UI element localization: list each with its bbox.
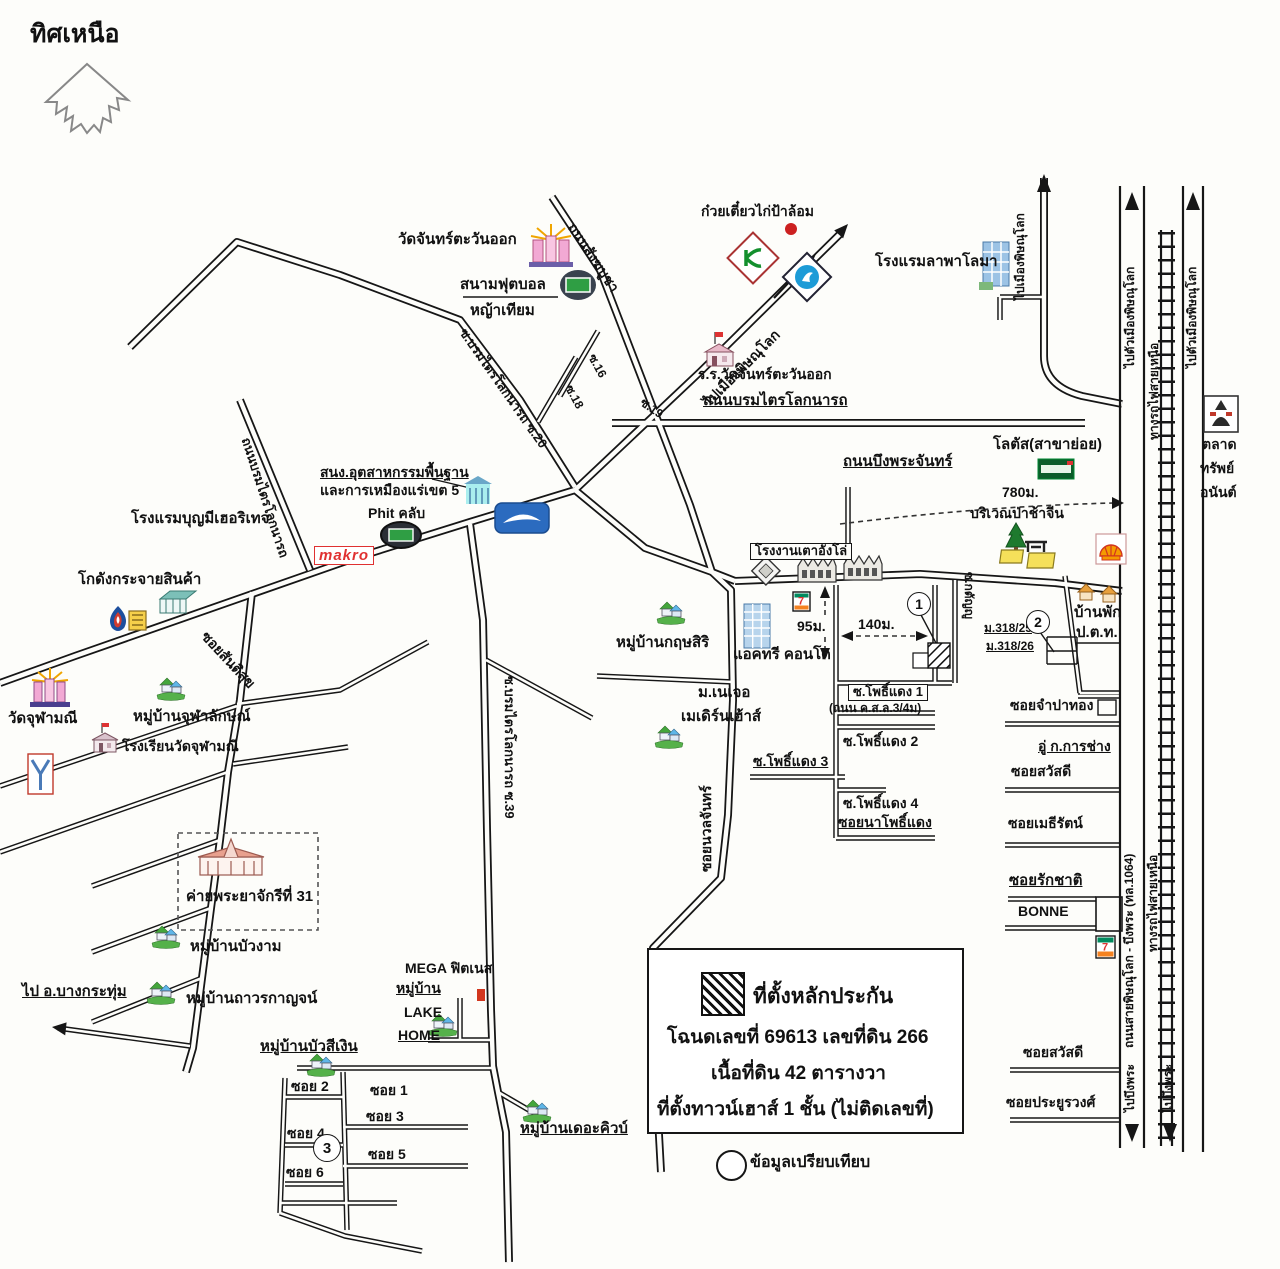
blue-sign-icon [495, 503, 549, 533]
factory-row-icon [798, 558, 836, 582]
arrow-down-1064-icon [1125, 1124, 1139, 1142]
label-school-wat-chan: ร.ร.วัดจันทร์ตะวันออก [698, 366, 832, 382]
road-bueng-phrachan: ถนนบึงพระจันทร์ [843, 453, 952, 470]
seven-glyph: 7 [1102, 942, 1108, 954]
seven-glyph: 7 [798, 596, 804, 608]
label-village-thawornkan: หมู่บ้านถาวรกาญจน์ [186, 990, 317, 1007]
bonne-compound [1096, 897, 1122, 931]
railway-track [1161, 230, 1172, 1146]
village-thawornkan-icon [147, 982, 175, 1005]
label-market-1: ตลาด [1202, 436, 1237, 452]
label-village-buasingoen: หมู่บ้านบัวสีเงิน [260, 1038, 358, 1055]
dist-780: 780ม. [1002, 484, 1038, 500]
compare-circle-icon [716, 1150, 747, 1181]
label-ptt-1: บ้านพัก [1074, 604, 1121, 621]
road-to-city-east-top: ไปตัวเมืองพิษณุโลก [1186, 267, 1200, 368]
village-krissiri-icon [657, 602, 685, 625]
label-noodle-shop: ก๋วยเตี๋ยวไก่ป้าล้อม [701, 203, 814, 219]
road-prayoonwong: ซอยประยูรวงศ์ [1006, 1094, 1095, 1110]
kasikorn-bank-icon [728, 233, 779, 284]
champathong-building [1098, 700, 1116, 715]
road-sawasdee-2: ซอยสวัสดี [1023, 1044, 1083, 1060]
y-junction-icon [28, 754, 53, 794]
actree-condo-icon [744, 604, 770, 648]
road-soi-b3: ซอย 3 [366, 1108, 404, 1124]
label-home: HOME [398, 1027, 440, 1043]
label-cemetery: บริเวณป่าช้าจีน [970, 505, 1064, 521]
label-school-chulamani: โรงเรียนวัดจุฬามณี [122, 738, 239, 754]
cemetery-houses-icon [1000, 550, 1055, 568]
cemetery-tree-icon [1006, 523, 1026, 553]
arrow-sw-bangkrathum-icon [52, 1022, 67, 1035]
road-champathong: ซอยจำปาทอง [1010, 697, 1093, 713]
label-railway-bottom: ทางรถไฟสายเหนือ [1147, 855, 1161, 952]
road-rakchat: ซอยรักชาติ [1009, 872, 1082, 889]
legend-title: ที่ตั้งหลักประกัน [753, 980, 893, 1013]
label-compare-note: ข้อมูลเปรียบเทียบ [750, 1154, 870, 1172]
road-1064-name: ถนนสายพิษณุโลก - บึงพระ (ทล.1064) [1123, 854, 1137, 1048]
label-village-krissiri: หมู่บ้านกฤษสิริ [616, 634, 709, 651]
road-sawasdee-1: ซอยสวัสดี [1011, 763, 1071, 779]
road-borom-soi-39: ซ.บรมไตรโลกนารถ ซ.39 [501, 676, 516, 819]
krungthai-bank-icon [783, 253, 831, 301]
label-warehouse: โกดังกระจายสินค้า [78, 571, 201, 588]
label-hotel-la-paloma: โรงแรมลาพาโลมา [875, 253, 998, 270]
label-camp-31: ค่ายพระยาจักรีที่ 31 [186, 888, 313, 905]
label-village-thecube: หมู่บ้านเดอะคิวบ์ [520, 1120, 628, 1137]
label-mining-2: และการเหมืองแร่เขต 5 [320, 482, 459, 498]
marker-2: 2 [1026, 610, 1050, 634]
crest-icon [129, 611, 146, 630]
label-football-field: สนามฟุตบอล [460, 276, 546, 293]
label-actree-condo: แอคทรี คอนโด [733, 646, 831, 663]
label-wat-chulamani: วัดจุฬามณี [8, 710, 77, 727]
road-pho-daeng-1: ซ.โพธิ์แดง 1 [848, 684, 928, 701]
label-hotel-boonme: โรงแรมบุญมีเฮอริเทจ [131, 510, 269, 527]
arrow-780m-icon [1112, 497, 1124, 509]
seven-eleven-icon-2: 7 [1096, 936, 1115, 958]
cemetery-table-icon [1025, 542, 1047, 552]
road-pho-daeng-3: ซ.โพธิ์แดง 3 [753, 753, 828, 769]
road-pho-daeng-4: ซ.โพธิ์แดง 4 [843, 795, 918, 811]
label-lake: LAKE [404, 1004, 442, 1020]
road-borom-horizontal: ถนนบรมไตรโลกนารถ [703, 392, 848, 409]
label-artificial-grass: หญ้าเทียม [470, 302, 535, 319]
label-market-2: ทรัพย์ [1200, 460, 1234, 476]
marker-1: 1 [907, 592, 931, 616]
road-nuanchan: ซอยนวลจันทร์ [698, 785, 714, 872]
marker-3: 3 [313, 1134, 341, 1162]
label-nature-2: เมเดิร์นเฮ้าส์ [681, 708, 761, 725]
seven-eleven-icon: 7 [793, 592, 810, 611]
warehouse-icon [160, 591, 196, 613]
shell-logo-icon [1096, 534, 1126, 564]
label-stove-factory: โรงงานเตาอังโล่ [750, 543, 852, 560]
label-bonne: BONNE [1018, 903, 1069, 919]
compass-north-label: ทิศเหนือ [30, 20, 119, 49]
measure-lines [432, 297, 1124, 660]
label-ptt-2: ป.ต.ท. [1076, 624, 1118, 641]
label-mega-fitness: MEGA ฟิตเนส [405, 960, 492, 976]
road-to-buengphra-2: ไปบึงพระ [1162, 1064, 1176, 1112]
label-wat-chan: วัดจันทร์ตะวันออก [398, 231, 517, 248]
lotus-logo-icon [1038, 459, 1074, 479]
label-nature-1: ม.เนเจอ [698, 684, 750, 701]
market-sap-anan-icon [1204, 396, 1238, 432]
road-na-pho-daeng: ซอยนาโพธิ์แดง [838, 814, 932, 830]
arrow-95m-up-icon [820, 586, 830, 598]
label-mining-1: สนง.อุตสาหกรรมพื้นฐาน [320, 464, 469, 480]
road-soi-b1: ซอย 1 [370, 1082, 408, 1098]
dist-140: 140ม. [856, 616, 896, 632]
football-field-icon [560, 270, 596, 300]
mining-office-icon [464, 476, 492, 504]
arrow-up-east-icon [1186, 192, 1200, 210]
label-garage: อู่ ก.การช่าง [1038, 738, 1111, 754]
road-soi-b5: ซอย 5 [368, 1146, 406, 1162]
road-pho-daeng-2: ซ.โพธิ์แดง 2 [843, 733, 918, 749]
road-soi-b2: ซอย 2 [291, 1078, 329, 1094]
road-katanyu: ซ.กตัญญู [961, 572, 975, 619]
arrow-140m-right-icon [916, 631, 928, 641]
label-phit-club: Phit คลับ [368, 505, 425, 521]
mega-fitness-icon [477, 989, 485, 1001]
legend-line3: ที่ตั้งทาวน์เฮาส์ 1 ชั้น (ไม่ติดเลขที่) [657, 1094, 934, 1124]
label-village-buangam: หมู่บ้านบัวงาม [190, 938, 282, 955]
label-makro: makro [314, 546, 374, 565]
road-to-city-1064-top: ไปตัวเมืองพิษณุโลก [1124, 267, 1138, 368]
arrow-up-1064-icon [1125, 192, 1139, 210]
label-lotus: โลตัส(สาขาย่อย) [993, 436, 1102, 453]
phit-club-stadium-icon [381, 522, 421, 548]
label-lake-village: หมู่บ้าน [396, 980, 441, 996]
legend-line1: โฉนดเลขที่ 69613 เลขที่ดิน 266 [667, 1022, 928, 1052]
road-to-phitsanulok-v1: ไปเมืองพิษณุโลก [1014, 213, 1028, 300]
label-village-chulalak: หมู่บ้านจุฬาลักษณ์ [133, 708, 251, 725]
arrow-down-rail-icon [1163, 1124, 1177, 1142]
label-railway-top: ทางรถไฟสายเหนือ [1148, 343, 1162, 440]
arrow-140m-left-icon [841, 631, 853, 641]
noodle-shop-dot-icon [785, 223, 797, 235]
label-m318-26: ม.318/26 [986, 640, 1034, 654]
road-pho-daeng-1-note: (ถนน ค.ส.ล.3/4ม) [829, 702, 921, 716]
road-mayrat: ซอยเมธีรัตน์ [1008, 815, 1083, 831]
label-market-3: อนันต์ [1200, 484, 1237, 500]
legend-hatch-swatch [701, 972, 745, 1016]
label-m318-25: ม.318/25 [984, 622, 1032, 636]
village-nature-icon [655, 726, 683, 749]
map: 7 7 ทิศเหนือ วัดจันทร [0, 0, 1280, 1269]
north-arrow-icon [46, 64, 128, 133]
dist-95: 95ม. [795, 618, 828, 634]
legend-box: ที่ตั้งหลักประกัน โฉนดเลขที่ 69613 เลขที… [647, 948, 964, 1134]
road-soi-b6: ซอย 6 [286, 1164, 324, 1180]
village-chulalak-icon [157, 678, 185, 701]
ptt-flame-icon [110, 606, 126, 631]
subject-plot [913, 643, 950, 668]
road-to-bangkrathum: ไป อ.บางกระทุ่ม [22, 983, 127, 1000]
arrow-up-v1-icon [1037, 174, 1051, 192]
school-chulamani-icon [92, 723, 118, 752]
legend-line2: เนื้อที่ดิน 42 ตารางวา [711, 1058, 886, 1088]
road-to-buengphra-1: ไปบึงพระ [1124, 1064, 1138, 1112]
